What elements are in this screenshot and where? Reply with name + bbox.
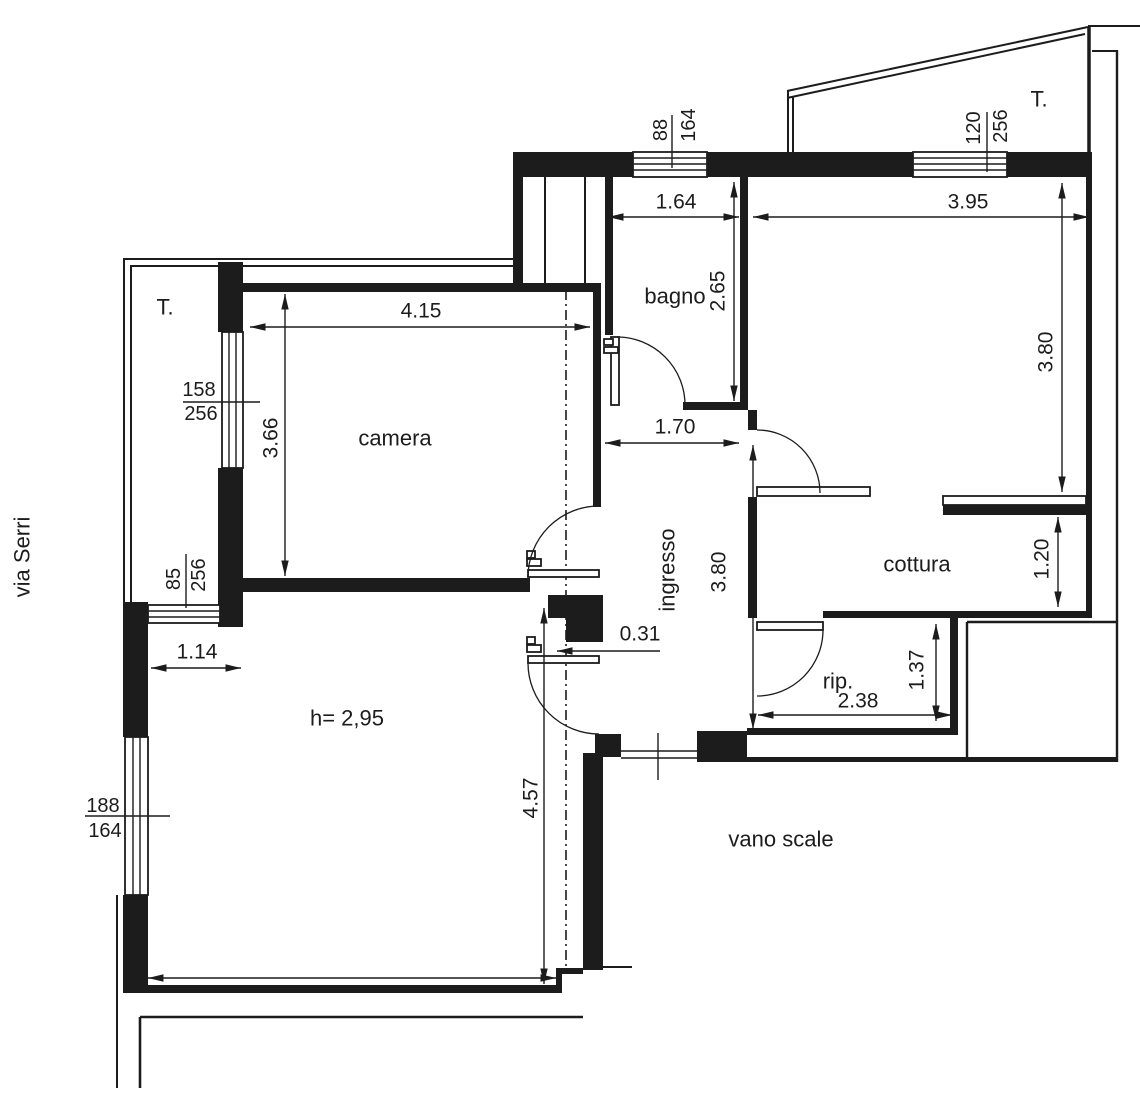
walls [123, 152, 1117, 993]
labels: via Serri T. T. camera bagno cottura ing… [10, 87, 1058, 852]
window-cottura-top [913, 152, 1007, 177]
wall-bagno-left [605, 177, 613, 335]
dim-label-bagno-width: 1.64 [656, 191, 697, 214]
wall-camera-bottom [243, 578, 530, 592]
dim-label-window-offset: 1.14 [177, 641, 218, 664]
floor-plan-page: via Serri T. T. camera bagno cottura ing… [0, 0, 1140, 1110]
window-label-cottura-top-h: 256 [990, 109, 1012, 142]
dim-label-camera-depth: 3.66 [260, 418, 283, 459]
terrace-right-diagonal-outer [787, 27, 1088, 91]
wall-camera-left-lower [218, 468, 243, 627]
terrace-right-label: T. [1030, 87, 1047, 112]
wall-ingresso-stub-a [548, 595, 603, 618]
street-label: via Serri [10, 517, 35, 598]
dim-label-cottura-depth: 3.80 [1035, 332, 1058, 373]
window-label-living-top-h: 256 [188, 558, 210, 591]
wall-living-left-upper [123, 623, 148, 737]
terrace-left-border-inner [131, 266, 513, 602]
wall-camera-left-upper [218, 262, 243, 332]
wall-rip-right [950, 618, 958, 735]
wall-top-left [513, 152, 633, 177]
entry-threshold [621, 733, 697, 780]
wall-living-left-lower [123, 895, 148, 993]
door-camera [527, 506, 599, 577]
room-label-bagno: bagno [644, 284, 705, 309]
room-label-vano-scale: vano scale [728, 827, 833, 852]
counter-bar [943, 505, 1092, 515]
floor-plan-drawing: via Serri T. T. camera bagno cottura ing… [0, 0, 1140, 1110]
dim-label-bagno-depth: 2.65 [707, 271, 730, 312]
wall-bagno-right [740, 177, 748, 410]
dim-label-cottura-counter: 1.20 [1031, 539, 1054, 580]
dim-label-rip-width: 2.38 [838, 690, 879, 713]
windows [125, 152, 1007, 895]
window-bagno-top [633, 152, 707, 177]
wall-top-mid [707, 152, 913, 177]
room-label-ingresso: ingresso [655, 528, 680, 611]
wall-vano-top [697, 757, 1117, 762]
door-rip [757, 622, 823, 696]
wall-step-v [556, 968, 562, 993]
wall-living-bottom [133, 985, 559, 993]
wall-junction [513, 152, 523, 292]
wall-top-right [1007, 152, 1092, 177]
window-label-cottura-top-w: 120 [963, 111, 985, 144]
door-bagno [604, 337, 685, 405]
dim-label-camera-width: 4.15 [401, 300, 442, 323]
dim-label-ingresso-depth: 3.80 [708, 552, 731, 593]
window-label-living-left-h: 164 [88, 820, 121, 842]
dim-label-living-depth: 4.57 [520, 778, 543, 819]
wall-cottura-right [1086, 177, 1092, 618]
terrace-left-label: T. [156, 295, 173, 320]
window-label-bagno-top-w: 88 [650, 119, 672, 141]
wall-camera-right [593, 283, 601, 507]
dim-label-wall-offset: 0.31 [620, 623, 661, 646]
window-label-camera-left-h: 256 [184, 403, 217, 425]
wall-bagno-bottom [683, 402, 748, 410]
wall-living-right [583, 753, 603, 970]
boundary-lines [117, 26, 1140, 1088]
room-label-height: h= 2,95 [310, 706, 384, 731]
wall-rip-bottom [747, 728, 958, 735]
wall-camera-top [243, 283, 601, 292]
wall-entry-right-block [697, 731, 747, 761]
counter-top-edge [943, 496, 1086, 505]
door-cottura [757, 430, 870, 496]
dim-label-ingresso-width: 1.70 [655, 416, 696, 439]
wall-cottura-bottom [823, 611, 1092, 618]
dim-label-rip-depth: 1.37 [906, 650, 929, 691]
wall-cottura-left-upper [748, 410, 757, 430]
room-label-camera: camera [358, 426, 432, 451]
wall-ingresso-stub-b [566, 618, 603, 642]
window-label-living-top-w: 85 [163, 568, 185, 590]
window-label-camera-left-w: 158 [182, 379, 215, 401]
window-label-living-left-w: 188 [86, 795, 119, 817]
wall-living-topleft-block [123, 602, 148, 623]
kitchen-counter [943, 496, 1092, 515]
window-label-bagno-top-h: 164 [678, 108, 700, 141]
dim-label-cottura-width: 3.95 [948, 191, 989, 214]
room-label-cottura: cottura [883, 552, 951, 577]
window-living-top [148, 605, 220, 623]
window-camera-left [222, 332, 243, 468]
terrace-left-border-outer [124, 259, 513, 602]
